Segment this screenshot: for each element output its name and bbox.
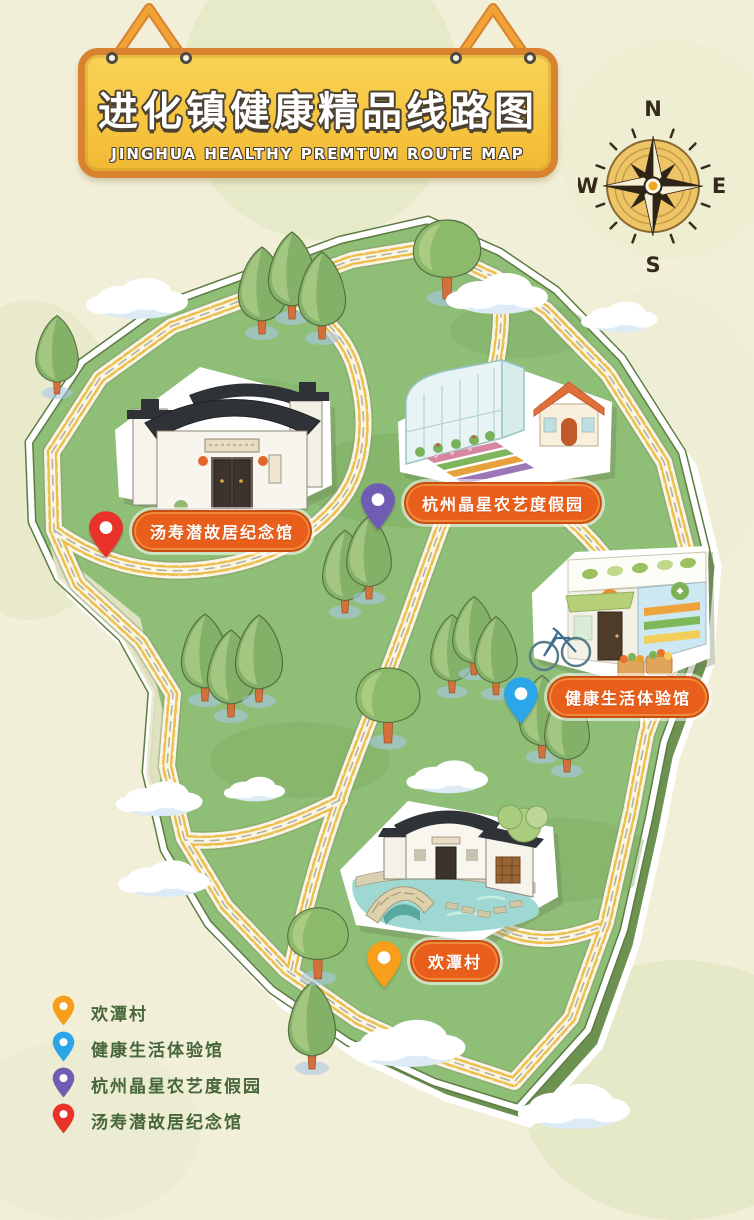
title-sign: 进化镇健康精品线路图 JINGHUA HEALTHY PREMTUM ROUTE… (78, 48, 558, 178)
legend-pin-red-icon (52, 1103, 75, 1138)
legend-item-health-hall: 健康生活体验馆 (52, 1030, 262, 1066)
legend-pin-orange-icon (52, 995, 75, 1030)
legend-item-tangshouqian: 汤寿潜故居纪念馆 (52, 1102, 262, 1138)
poi-label-huantan[interactable]: 欢潭村 (410, 940, 500, 982)
map-pin-red-icon[interactable] (88, 510, 124, 559)
poi-label-tangshouqian[interactable]: 汤寿潜故居纪念馆 (132, 510, 312, 552)
page-title: 进化镇健康精品线路图 (85, 79, 551, 137)
compass-north-label: N (644, 97, 662, 121)
map-legend: 欢潭村 健康生活体验馆 杭州晶星农艺度假园 汤寿潜故居纪念馆 (52, 994, 262, 1138)
map-pin-orange-icon[interactable] (366, 940, 402, 989)
compass-east-label: E (712, 174, 726, 198)
legend-item-huantan: 欢潭村 (52, 994, 262, 1030)
legend-label: 杭州晶星农艺度假园 (91, 1072, 262, 1097)
map-pin-purple-icon[interactable] (360, 482, 396, 531)
sign-grommet (524, 52, 536, 64)
compass-rose: N E S W (578, 94, 728, 276)
compass-south-label: S (645, 253, 660, 276)
map-pin-blue-icon[interactable] (503, 676, 539, 725)
poi-tangshouqian[interactable]: 汤寿潜故居纪念馆 (88, 510, 312, 559)
sign-grommet (180, 52, 192, 64)
legend-label: 欢潭村 (91, 1000, 148, 1025)
sign-grommet (106, 52, 118, 64)
route-map-page: { "sign": { "title_zh": "进化镇健康精品线路图", "t… (0, 0, 754, 1160)
poi-huantan[interactable]: 欢潭村 (366, 940, 500, 989)
compass-west-label: W (578, 174, 599, 198)
page-subtitle: JINGHUA HEALTHY PREMTUM ROUTE MAP (85, 145, 551, 163)
legend-item-jingxing: 杭州晶星农艺度假园 (52, 1066, 262, 1102)
sign-grommet (450, 52, 462, 64)
poi-health-hall[interactable]: 健康生活体验馆 (503, 676, 709, 725)
legend-label: 汤寿潜故居纪念馆 (91, 1108, 243, 1133)
poi-jingxing[interactable]: 杭州晶星农艺度假园 (360, 482, 602, 531)
poi-label-jingxing[interactable]: 杭州晶星农艺度假园 (404, 482, 602, 524)
legend-pin-purple-icon (52, 1067, 75, 1102)
legend-label: 健康生活体验馆 (91, 1036, 224, 1061)
legend-pin-blue-icon (52, 1031, 75, 1066)
poi-label-health-hall[interactable]: 健康生活体验馆 (547, 676, 709, 718)
